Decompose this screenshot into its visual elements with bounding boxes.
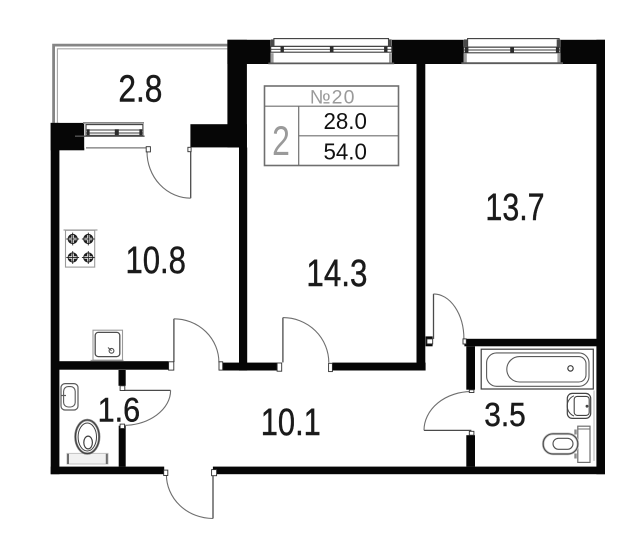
svg-text:№20: №20 [310, 87, 356, 109]
svg-text:28.0: 28.0 [323, 107, 366, 134]
svg-text:54.0: 54.0 [323, 138, 366, 165]
svg-text:3.5: 3.5 [484, 396, 526, 433]
svg-text:1.6: 1.6 [98, 391, 141, 429]
svg-text:14.3: 14.3 [306, 252, 367, 295]
svg-text:2: 2 [272, 117, 290, 164]
svg-text:10.1: 10.1 [261, 402, 321, 444]
svg-text:13.7: 13.7 [485, 187, 544, 229]
svg-text:2.8: 2.8 [118, 68, 162, 110]
svg-text:10.8: 10.8 [125, 240, 185, 282]
